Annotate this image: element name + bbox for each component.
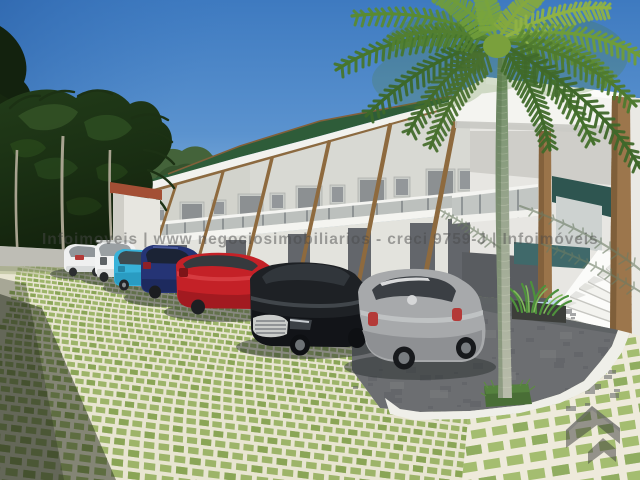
svg-text:Infoimoveis | www negociosimob: Infoimoveis | www negociosimobiliarios -…	[42, 231, 599, 248]
